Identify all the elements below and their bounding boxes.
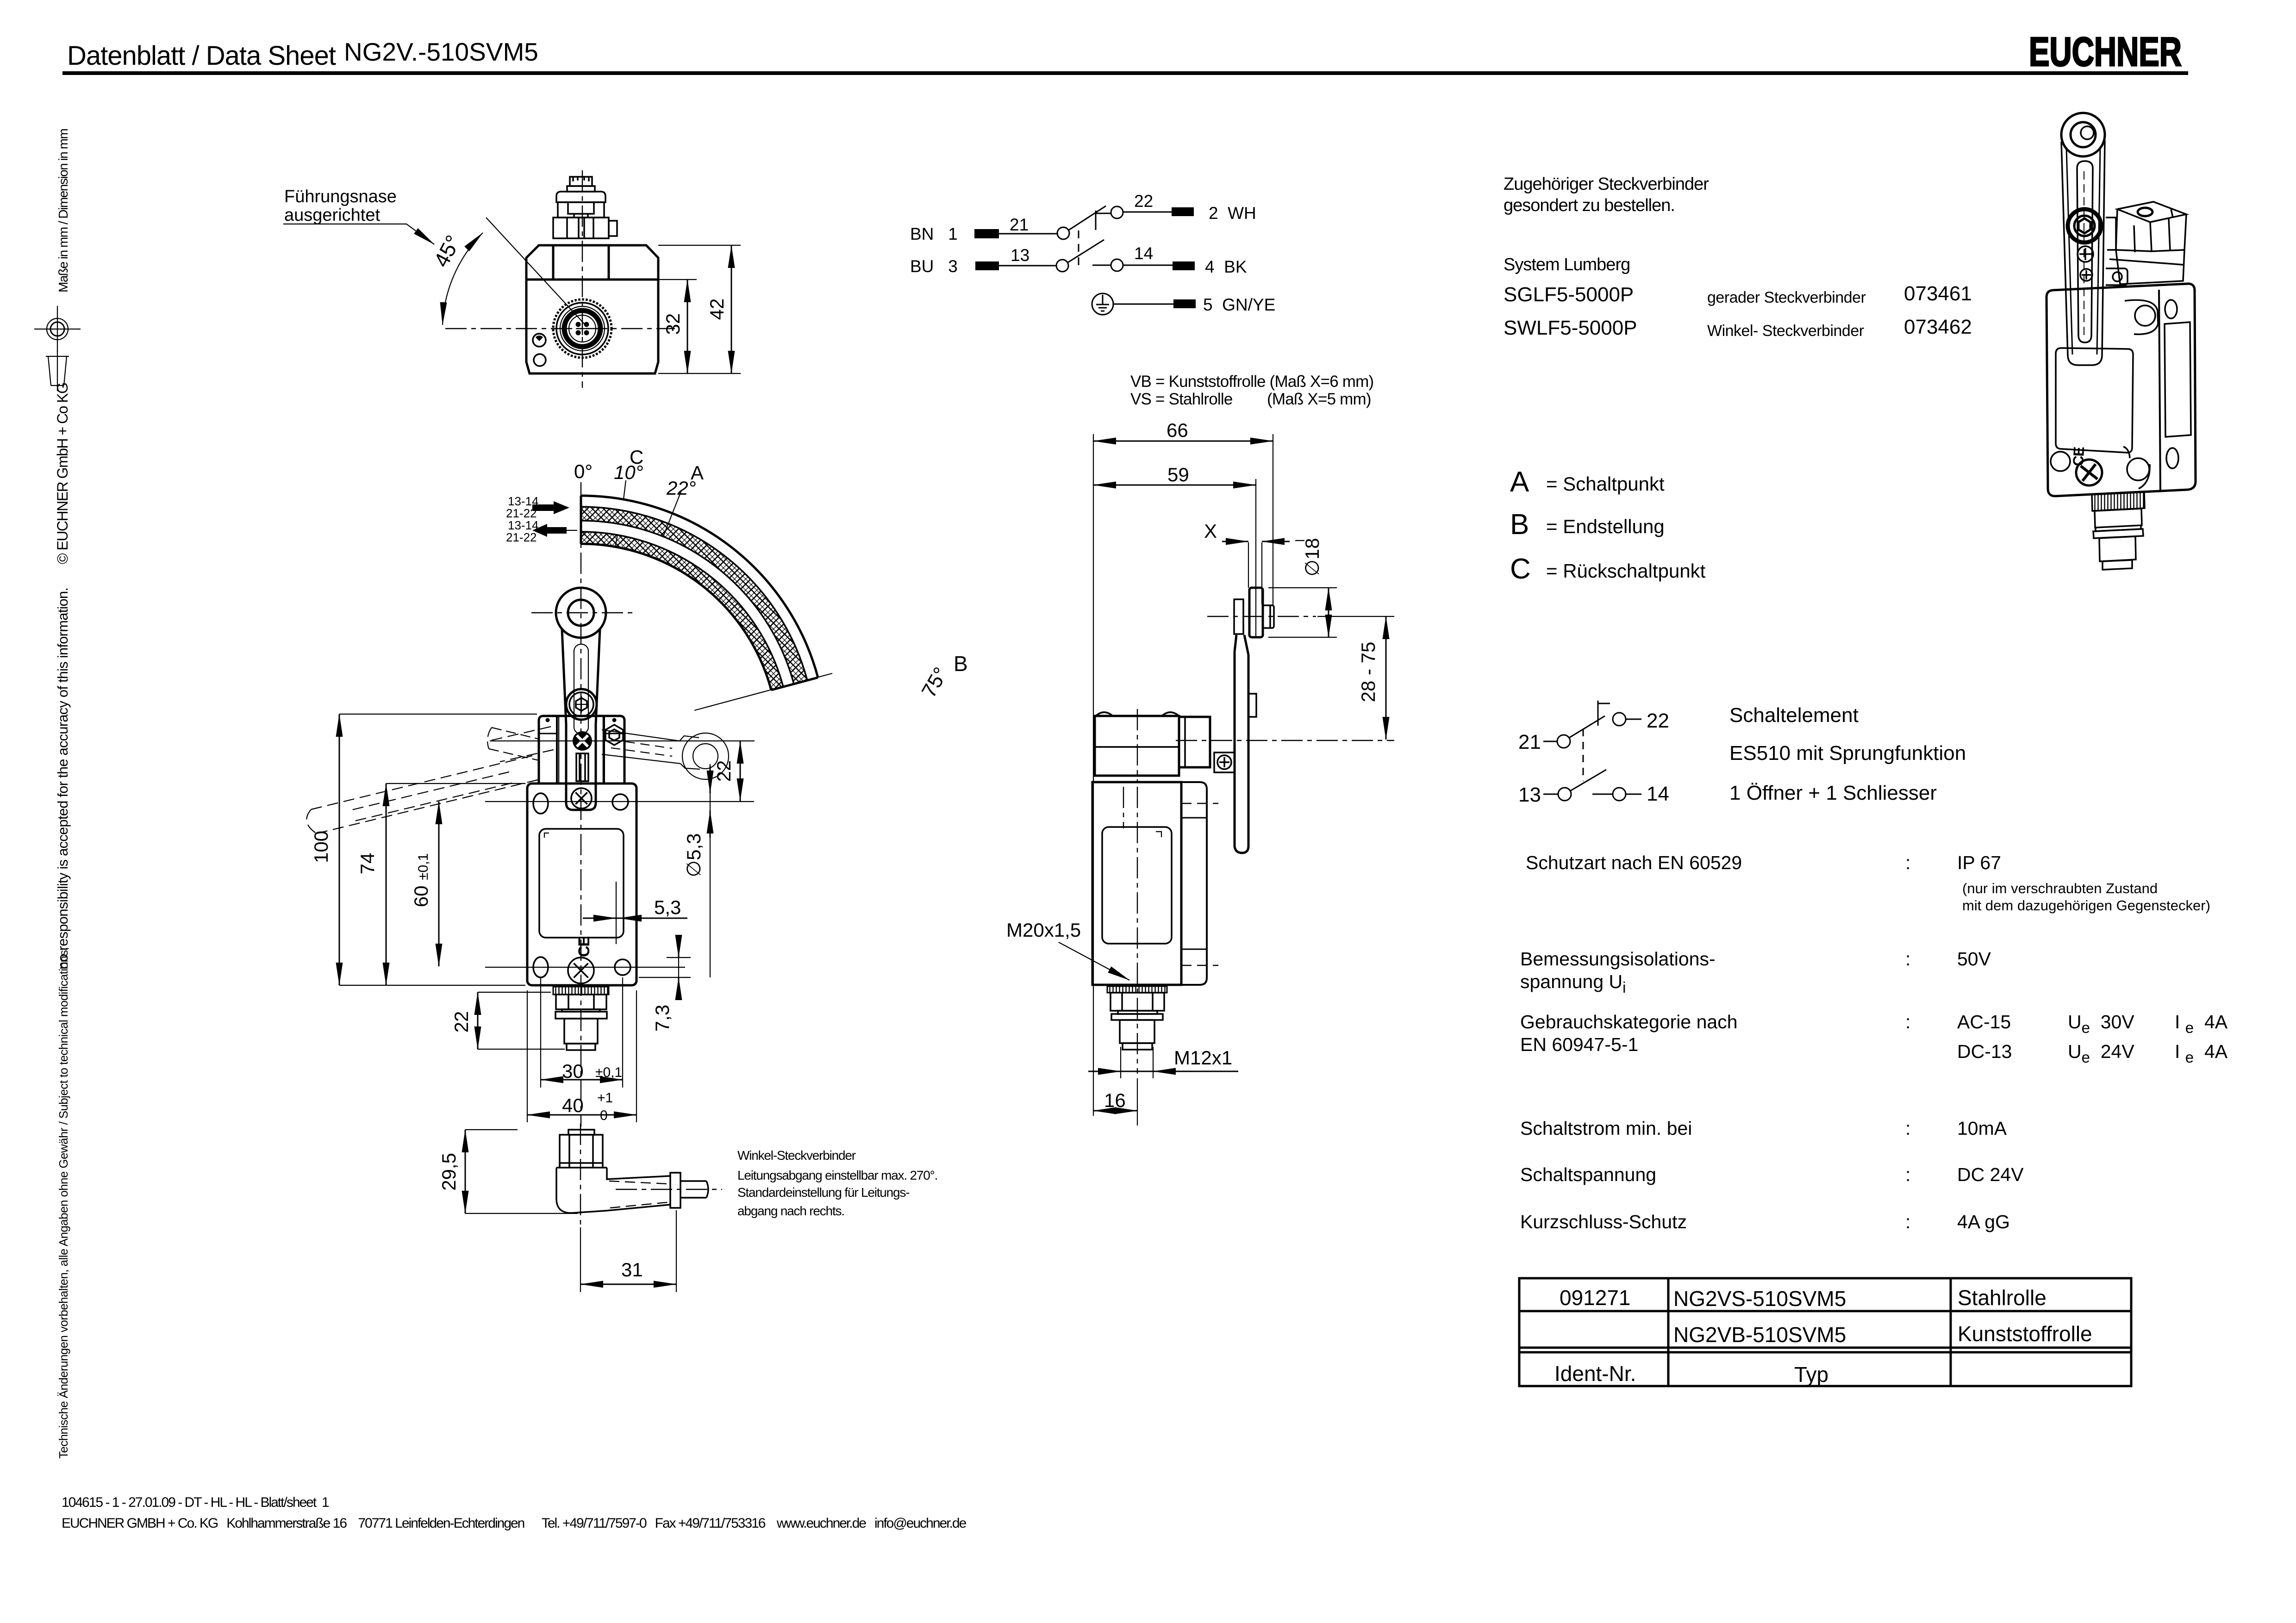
- svg-text:Gebrauchskategorie nach: Gebrauchskategorie nach: [1520, 1011, 1738, 1032]
- svg-text:CE: CE: [575, 936, 593, 957]
- svg-text:Bemessungsisolations-: Bemessungsisolations-: [1520, 948, 1716, 970]
- svg-text:Ue 24V: Ue 24V: [2068, 1041, 2134, 1066]
- svg-text:22: 22: [1134, 192, 1153, 211]
- svg-text::: :: [1905, 1211, 1910, 1232]
- svg-text:Kurzschluss-Schutz: Kurzschluss-Schutz: [1520, 1211, 1687, 1232]
- svg-text::: :: [1905, 1011, 1910, 1032]
- svg-text:4A gG: 4A gG: [1957, 1211, 2010, 1232]
- svg-text:7,3: 7,3: [651, 1005, 673, 1032]
- svg-text:no responsibility is accepted: no responsibility is accepted for the ac…: [55, 588, 71, 970]
- svg-text:Kunststoffrolle: Kunststoffrolle: [1958, 1322, 2092, 1346]
- svg-text:22: 22: [1647, 709, 1669, 732]
- svg-text:21: 21: [1010, 215, 1029, 234]
- svg-text:System Lumberg: System Lumberg: [1504, 255, 1630, 274]
- svg-text:2 WH: 2 WH: [1209, 204, 1256, 223]
- svg-text:I e 4A: I e 4A: [2175, 1041, 2228, 1066]
- svg-text:Standardeinstellung für Leitun: Standardeinstellung für Leitungs-: [737, 1185, 910, 1200]
- svg-text:091271: 091271: [1560, 1286, 1631, 1310]
- svg-text:073462: 073462: [1904, 316, 1972, 338]
- svg-text:Winkel- Steckverbinder: Winkel- Steckverbinder: [1707, 322, 1864, 340]
- svg-text:32: 32: [662, 313, 684, 335]
- svg-text:21: 21: [1518, 731, 1541, 753]
- svg-text:spannung Ui: spannung Ui: [1520, 971, 1626, 996]
- svg-text:42: 42: [706, 298, 728, 320]
- svg-text:±0,1: ±0,1: [595, 1065, 622, 1080]
- svg-text:(nur im verschraubten Zustand: (nur im verschraubten Zustand: [1962, 880, 2158, 896]
- svg-text:B: B: [954, 652, 968, 676]
- svg-text:4 BK: 4 BK: [1205, 257, 1247, 276]
- svg-text:∅5,3: ∅5,3: [683, 833, 705, 877]
- svg-text:(Maß X=5 mm): (Maß X=5 mm): [1267, 390, 1371, 408]
- svg-text:50V: 50V: [1957, 948, 1991, 970]
- svg-text:28 - 75: 28 - 75: [1357, 642, 1379, 703]
- svg-text:= Schaltpunkt: = Schaltpunkt: [1546, 473, 1665, 495]
- svg-text:13: 13: [1011, 246, 1029, 265]
- svg-text:C: C: [1510, 553, 1531, 585]
- svg-text:Typ: Typ: [1794, 1362, 1828, 1387]
- svg-text:gerader Steckverbinder: gerader Steckverbinder: [1707, 289, 1866, 306]
- svg-text:Schaltelement: Schaltelement: [1729, 704, 1859, 727]
- svg-text:BN 1: BN 1: [910, 224, 958, 243]
- svg-text:13: 13: [1518, 784, 1541, 806]
- svg-text:SGLF5-5000P: SGLF5-5000P: [1504, 283, 1634, 306]
- svg-text:= Endstellung: = Endstellung: [1546, 516, 1665, 537]
- svg-text:EN 60947-5-1: EN 60947-5-1: [1520, 1034, 1638, 1055]
- svg-text:66: 66: [1167, 419, 1188, 441]
- svg-text:NG2VS-510SVM5: NG2VS-510SVM5: [1673, 1287, 1846, 1311]
- svg-text:NG2VB-510SVM5: NG2VB-510SVM5: [1673, 1323, 1846, 1347]
- svg-text:073461: 073461: [1904, 282, 1972, 305]
- svg-text:100: 100: [310, 831, 332, 863]
- svg-text:Ident-Nr.: Ident-Nr.: [1554, 1362, 1636, 1386]
- svg-text:IP 67: IP 67: [1957, 852, 2001, 873]
- svg-text:VB = Kunststoffrolle (Maß X=6: VB = Kunststoffrolle (Maß X=6 mm): [1130, 373, 1373, 391]
- svg-text:10mA: 10mA: [1957, 1118, 2007, 1139]
- svg-text:Maße in mm / Dimension in mm: Maße in mm / Dimension in mm: [56, 129, 70, 292]
- svg-text:B: B: [1510, 509, 1529, 541]
- svg-text:EUCHNER GMBH + Co. KG Kohlha: EUCHNER GMBH + Co. KG Kohlhammerstraße 1…: [62, 1516, 967, 1531]
- svg-text:M12x1: M12x1: [1174, 1047, 1232, 1069]
- svg-text:0°: 0°: [574, 460, 593, 482]
- svg-text:= Rückschaltpunkt: = Rückschaltpunkt: [1546, 560, 1706, 582]
- svg-text:74: 74: [356, 853, 378, 875]
- svg-text:Ue 30V: Ue 30V: [2068, 1011, 2134, 1036]
- svg-text::: :: [1905, 948, 1910, 970]
- svg-text:22: 22: [713, 760, 735, 782]
- svg-text:40: 40: [562, 1094, 584, 1116]
- svg-text:29,5: 29,5: [438, 1153, 460, 1191]
- svg-text:NG2V.-510SVM5: NG2V.-510SVM5: [344, 37, 538, 66]
- svg-text:30: 30: [562, 1060, 584, 1082]
- svg-text:ES510 mit Sprungfunktion: ES510 mit Sprungfunktion: [1729, 742, 1966, 765]
- svg-text:mit dem dazugehörigen Gegenste: mit dem dazugehörigen Gegenstecker): [1962, 897, 2210, 914]
- svg-text:16: 16: [1104, 1089, 1126, 1111]
- svg-text:Führungsnase: Führungsnase: [284, 187, 397, 206]
- svg-text:∅18: ∅18: [1301, 538, 1323, 576]
- svg-text:Schaltspannung: Schaltspannung: [1520, 1164, 1656, 1185]
- svg-text:A: A: [1510, 466, 1529, 498]
- svg-text:104615 - 1 - 27.01.09 - DT - H: 104615 - 1 - 27.01.09 - DT - HL - HL - B…: [62, 1495, 329, 1510]
- svg-text:Technische Änderungen vorbehal: Technische Änderungen vorbehalten, alle …: [56, 947, 70, 1459]
- svg-text:DC-13: DC-13: [1957, 1041, 2012, 1062]
- svg-text:0: 0: [600, 1108, 608, 1123]
- svg-text:abgang nach rechts.: abgang nach rechts.: [737, 1204, 844, 1218]
- svg-text:Zugehöriger Steckverbinder: Zugehöriger Steckverbinder: [1504, 174, 1709, 194]
- svg-text:DC 24V: DC 24V: [1957, 1164, 2024, 1185]
- svg-text:Winkel-Steckverbinder: Winkel-Steckverbinder: [737, 1148, 856, 1163]
- svg-text:SWLF5-5000P: SWLF5-5000P: [1504, 317, 1637, 339]
- svg-text:59: 59: [1167, 464, 1189, 485]
- svg-text::: :: [1905, 1164, 1910, 1185]
- svg-text:+1: +1: [597, 1090, 613, 1106]
- svg-text:22: 22: [450, 1011, 472, 1033]
- svg-text:5,3: 5,3: [654, 896, 681, 918]
- svg-text:1 Öffner + 1 Schliesser: 1 Öffner + 1 Schliesser: [1729, 782, 1937, 804]
- svg-text::: :: [1905, 1118, 1910, 1139]
- svg-text:Schaltstrom min. bei: Schaltstrom min. bei: [1520, 1118, 1692, 1139]
- svg-text:31: 31: [621, 1259, 643, 1281]
- svg-text:AC-15: AC-15: [1957, 1011, 2011, 1032]
- svg-text:21-22: 21-22: [506, 530, 537, 544]
- svg-text:© EUCHNER GmbH + Co KG: © EUCHNER GmbH + Co KG: [54, 383, 71, 564]
- svg-text:VS = Stahlrolle: VS = Stahlrolle: [1130, 390, 1233, 408]
- svg-text:5 GN/YE: 5 GN/YE: [1203, 295, 1275, 314]
- svg-text:Datenblatt / Data Sheet: Datenblatt / Data Sheet: [67, 41, 336, 71]
- svg-text:I e 4A: I e 4A: [2175, 1011, 2228, 1036]
- svg-text:Leitungsabgang einstellbar max: Leitungsabgang einstellbar max. 270°.: [737, 1168, 937, 1182]
- svg-text::: :: [1905, 852, 1910, 873]
- svg-text:ausgerichtet: ausgerichtet: [284, 205, 380, 225]
- svg-text:Stahlrolle: Stahlrolle: [1958, 1286, 2046, 1310]
- svg-text:22°: 22°: [666, 477, 696, 499]
- svg-text:M20x1,5: M20x1,5: [1006, 919, 1081, 941]
- svg-text:gesondert zu bestellen.: gesondert zu bestellen.: [1504, 196, 1675, 215]
- svg-text:14: 14: [1647, 783, 1669, 805]
- svg-text:EUCHNER: EUCHNER: [2029, 29, 2182, 75]
- svg-text:10°: 10°: [614, 461, 643, 483]
- svg-text:Schutzart nach EN 60529: Schutzart nach EN 60529: [1526, 852, 1742, 873]
- svg-text:14: 14: [1134, 244, 1153, 263]
- svg-text:X: X: [1204, 520, 1217, 542]
- svg-text:BU 3: BU 3: [910, 257, 958, 276]
